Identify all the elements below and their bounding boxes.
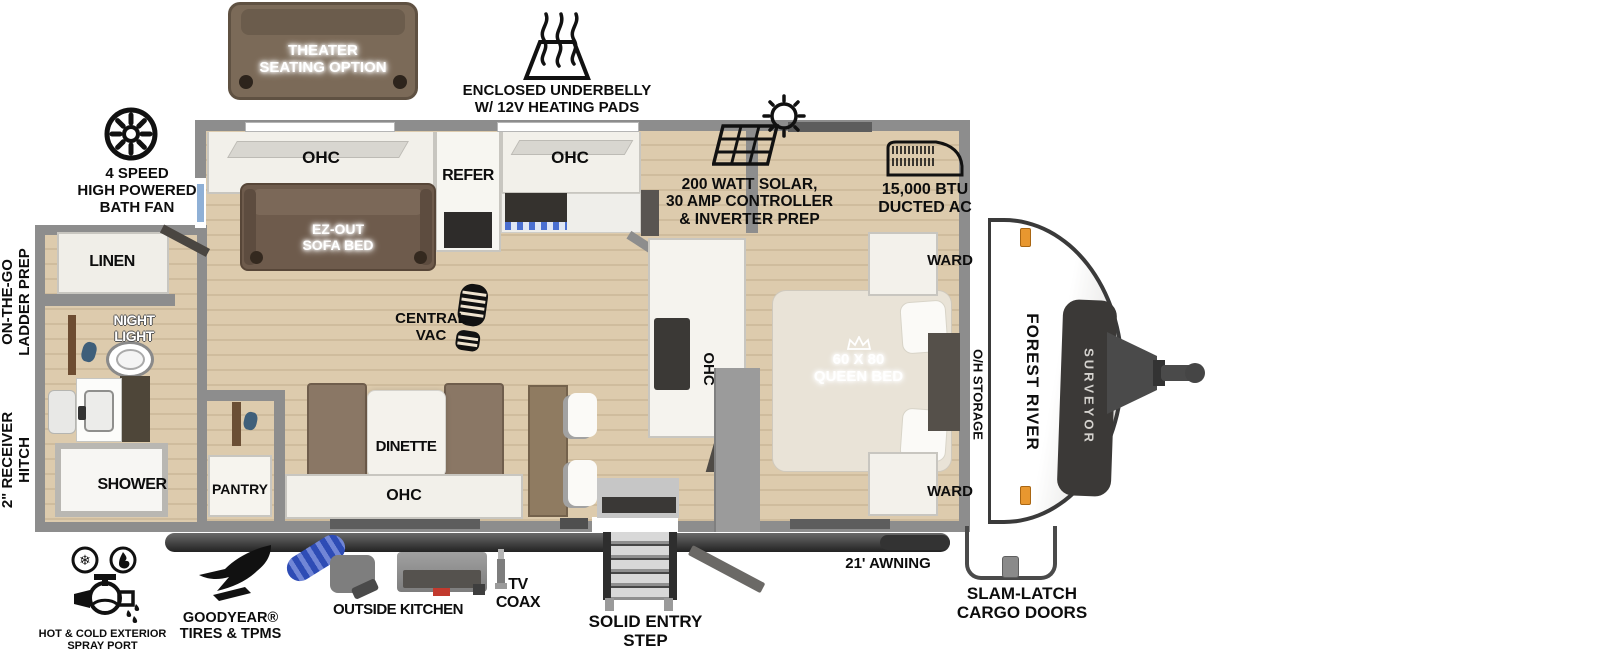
window-bottom-bedroom (790, 519, 890, 529)
dinette-label: DINETTE (360, 439, 452, 456)
solar-label: 200 WATT SOLAR,30 AMP CONTROLLER& INVERT… (652, 176, 847, 228)
bed-size-label: 60 X 80 (796, 351, 921, 368)
dinette-bench-left (307, 383, 367, 479)
marker-light-bottom (1020, 486, 1031, 505)
ward-bottom-label: WARD (908, 484, 992, 501)
hitch-frame (1105, 328, 1205, 418)
entry-door-open (688, 545, 766, 593)
theater-cupholder-right (393, 75, 407, 89)
refrigerator-opening (444, 212, 492, 248)
window-top-kitchen (497, 122, 639, 132)
towel-bar (68, 315, 76, 375)
tv-coax-label: TVCOAX (490, 576, 546, 612)
entry-door-opening (592, 517, 678, 532)
dinette-table (367, 390, 446, 478)
ac-label: 15,000 BTUDUCTED AC (870, 181, 980, 217)
theater-seating-option: THEATERSEATING OPTION (228, 2, 418, 100)
step-foot-left (605, 598, 614, 611)
wall-seat-bottom (568, 460, 597, 506)
cargo-door-latch (1002, 556, 1019, 578)
refer-label: REFER (433, 167, 503, 185)
cooktop-burners (505, 222, 567, 230)
ladder-prep-label: ON-THE-GOLADDER PREP (0, 217, 40, 387)
toilet-seat (116, 349, 145, 370)
outside-kitchen-handle (473, 584, 485, 595)
pantry-towel-bar (232, 402, 241, 446)
dinette-bench-right (444, 383, 504, 479)
window-top-rear (245, 122, 395, 132)
bed-type-label: QUEEN BED (796, 368, 921, 385)
window-bottom-small (560, 518, 588, 529)
ohc-kitchen-label: OHC (528, 148, 612, 167)
ohc-dinette-label: OHC (368, 487, 440, 505)
svg-text:❄: ❄ (79, 552, 91, 568)
wall-seat-top (568, 393, 597, 437)
sofa-cupholder-right (414, 251, 427, 264)
linen-wall (45, 294, 175, 306)
cooktop (505, 193, 567, 225)
spray-port-icon: ❄ (68, 546, 146, 626)
awning-tube-joint (880, 535, 950, 550)
vanity-counter (120, 376, 150, 442)
sofa-cupholder-left (250, 251, 263, 264)
goodyear-icon (193, 543, 277, 605)
outside-kitchen-drawer (403, 570, 481, 588)
oh-storage-label: O/H STORAGE (970, 335, 985, 455)
crown-icon (846, 336, 872, 351)
outside-kitchen-label: OUTSIDE KITCHEN (332, 602, 464, 619)
bath-fan-icon (103, 106, 159, 162)
pantry-label: PANTRY (203, 482, 277, 498)
goodyear-label: GOODYEAR®TIRES & TPMS (168, 610, 293, 642)
ward-top-label: WARD (908, 253, 992, 270)
theater-back-cushion (241, 9, 405, 35)
awning-tube (165, 533, 950, 552)
theater-label: THEATERSEATING OPTION (231, 43, 415, 77)
shower-label: SHOWER (90, 476, 174, 494)
bed-overhead-storage-face (928, 333, 960, 431)
marker-light-top (1020, 228, 1031, 247)
theater-cupholder-left (239, 75, 253, 89)
underbelly-icon (512, 4, 602, 82)
hitch-icon (1105, 328, 1205, 418)
entry-step-graphic (603, 532, 677, 600)
window-bottom-dinette (330, 519, 480, 529)
sink-faucet (78, 406, 86, 420)
outside-kitchen-latch (433, 588, 450, 596)
bath-fan-label: 4 SPEEDHIGH POWEREDBATH FAN (62, 166, 212, 216)
ac-icon (884, 138, 966, 178)
linen-label: LINEN (76, 253, 148, 271)
cargo-doors-label: SLAM-LATCHCARGO DOORS (938, 584, 1106, 622)
entry-step-label: SOLID ENTRYSTEP (578, 612, 713, 650)
underbelly-label: ENCLOSED UNDERBELLYW/ 12V HEATING PADS (462, 83, 652, 117)
floorplan-canvas: THEATERSEATING OPTION ENCLOSED UNDERBELL… (0, 0, 1600, 659)
queen-bed-label-group: 60 X 80 QUEEN BED (796, 336, 921, 385)
tall-cabinet (528, 385, 568, 517)
sink-basin (84, 390, 114, 432)
entry-side-wall (714, 368, 760, 532)
tv (654, 318, 690, 390)
surveyor-label: SURVEYOR (1081, 321, 1096, 473)
night-light-label: NIGHTLIGHT (101, 313, 167, 344)
forest-river-label: FOREST RIVER (1024, 292, 1042, 472)
solar-icon (712, 90, 812, 170)
ohc-rear-label: OHC (285, 148, 357, 167)
pantry-wall-right (274, 390, 285, 532)
sofa-back-cushion (254, 189, 422, 215)
receiver-hitch-label: 2" RECEIVERHITCH (0, 385, 40, 535)
step-foot-right (664, 598, 673, 611)
awning-label: 21' AWNING (833, 556, 943, 573)
bath-mirror (48, 390, 76, 434)
entry-mat (602, 497, 676, 513)
outside-kitchen-unit (397, 552, 487, 592)
sofa-label: EZ-OUTSOFA BED (300, 222, 376, 253)
spray-port-label: HOT & COLD EXTERIORSPRAY PORT (35, 628, 170, 653)
ohc-tv-label: OHC (700, 337, 716, 401)
central-vac-label: CENTRALVAC (392, 311, 470, 345)
